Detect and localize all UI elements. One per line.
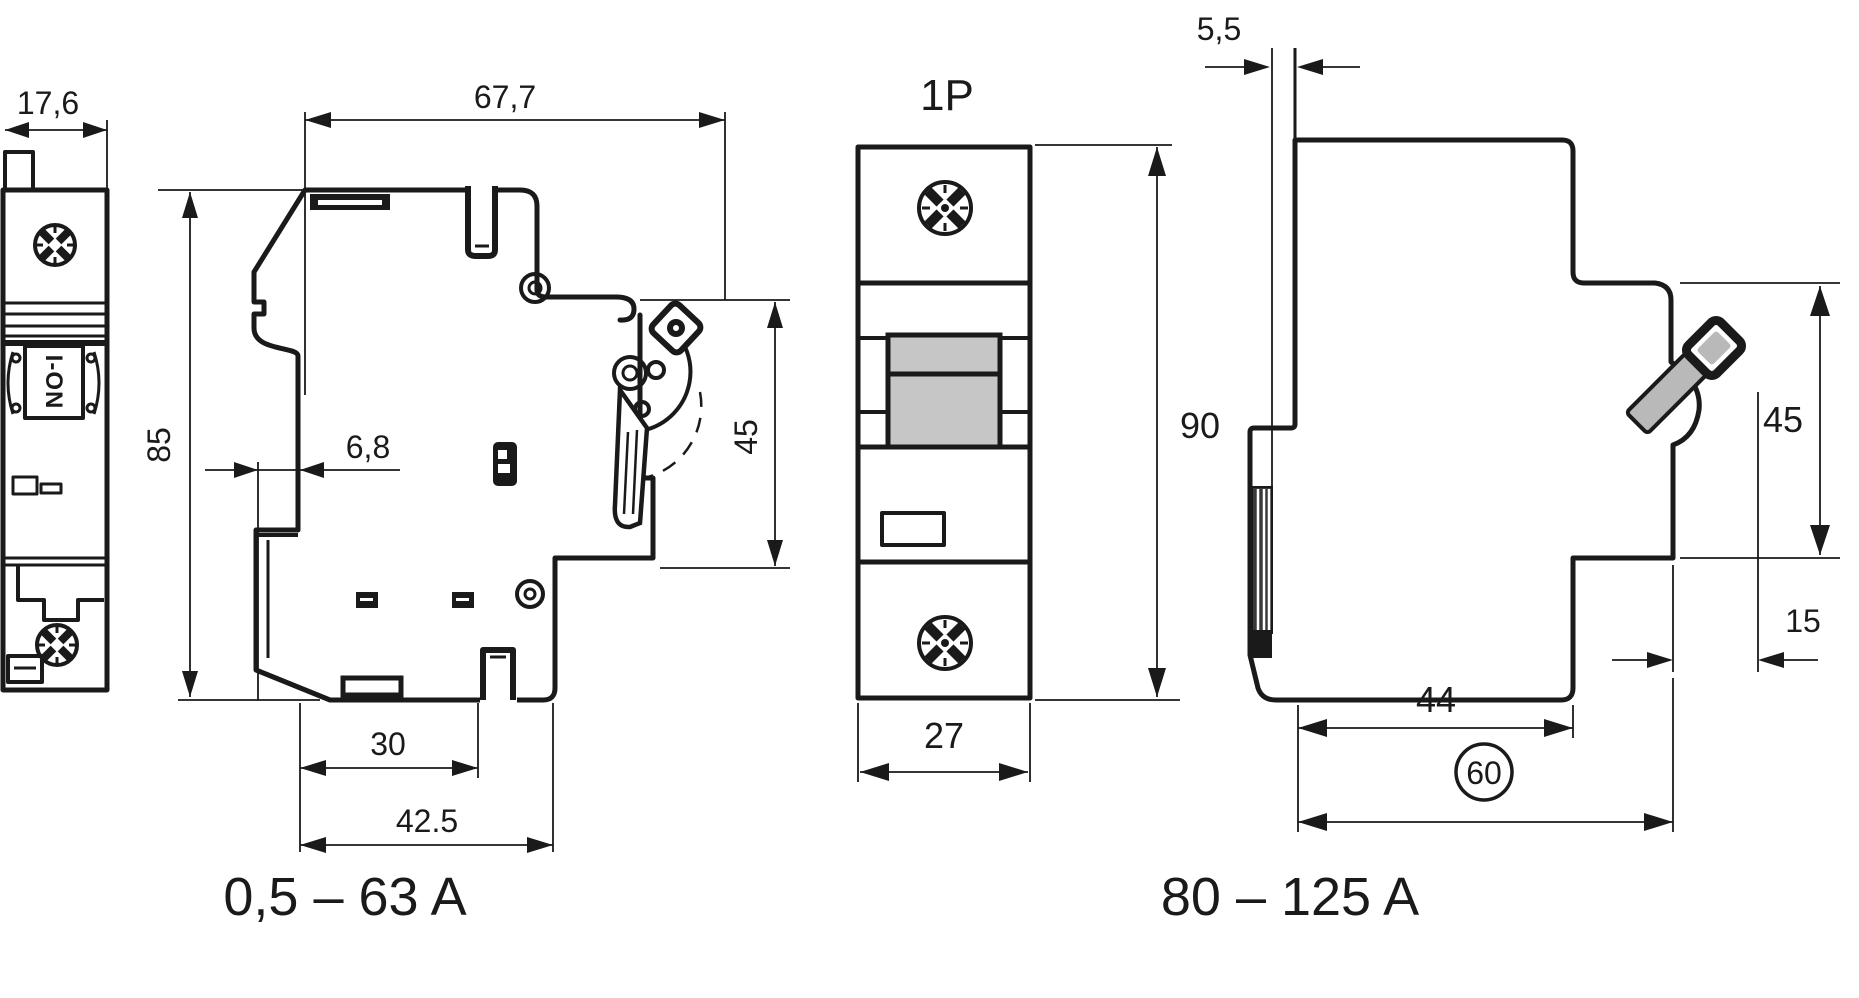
screw-icon (35, 225, 75, 265)
bottom-slot (343, 678, 401, 695)
dim-clip-6-8: 6,8 (205, 429, 400, 700)
toggle-front (858, 335, 1030, 447)
body-step-detail2 (41, 484, 61, 493)
clip-symbol (493, 442, 517, 486)
body-step-detail (13, 477, 37, 494)
toggle-handle-gray (888, 335, 1000, 447)
screw-icon (919, 182, 971, 234)
view-front-1p: 1P (858, 71, 1220, 782)
dim-width-27: 27 (858, 703, 1030, 782)
dim-base-42-5: 42.5 (300, 703, 553, 853)
dim-label-90: 90 (1180, 405, 1220, 446)
bottom-terminal (18, 565, 104, 620)
dim-label-6-8: 6,8 (346, 429, 390, 465)
dim-label-67-7: 67,7 (474, 79, 536, 115)
toggle-rocker: I-ON (8, 346, 99, 418)
toggle-mechanism (614, 301, 703, 527)
dim-label-27: 27 (924, 715, 964, 756)
view-side-large: 5,5 45 15 44 (1161, 11, 1840, 927)
bottom-notch (480, 650, 517, 703)
dim-label-30: 30 (370, 726, 406, 762)
screw-icon (919, 617, 971, 669)
rating-label-large-range: 80 – 125 A (1161, 867, 1419, 927)
label-window (882, 513, 944, 545)
dim-label-42-5: 42.5 (396, 803, 458, 839)
dim-width-17-6: 17,6 (5, 85, 107, 188)
dim-label-15: 15 (1785, 603, 1821, 639)
dim-label-44: 44 (1416, 679, 1456, 720)
dim-label-85: 85 (141, 427, 177, 463)
top-terminal-tab (5, 152, 33, 190)
vent-louvers (3, 303, 107, 343)
dim-label-17-6: 17,6 (17, 85, 79, 121)
pole-count-title: 1P (920, 71, 974, 120)
toggle-lever-large (1626, 318, 1744, 434)
view-front-narrow: 17,6 (3, 85, 107, 690)
dim-height-90: 90 (1035, 145, 1220, 700)
dim-height-85: 85 (141, 190, 320, 700)
dim-label-45-large: 45 (1763, 399, 1803, 440)
view-side-small: 67,7 85 6,8 45 (141, 79, 790, 927)
din-rail-cross-section (1252, 487, 1272, 658)
dim-rail-offset-5-5: 5,5 (1197, 11, 1360, 75)
dim-label-60: 60 (1466, 755, 1502, 791)
breaker-side-outline (254, 190, 653, 700)
top-notch (466, 184, 497, 256)
technical-drawing-page: 17,6 (0, 0, 1859, 998)
dim-label-45-small: 45 (728, 419, 764, 455)
lever-swing-dashed-arc (648, 392, 701, 477)
dim-depth-67-7: 67,7 (305, 79, 725, 395)
rating-label-small-range: 0,5 – 63 A (223, 867, 466, 927)
screw-side-icon (517, 581, 543, 607)
breaker-dimension-drawing: 17,6 (0, 0, 1859, 998)
dim-label-5-5: 5,5 (1197, 11, 1241, 47)
toggle-on-label: I-ON (40, 355, 67, 410)
